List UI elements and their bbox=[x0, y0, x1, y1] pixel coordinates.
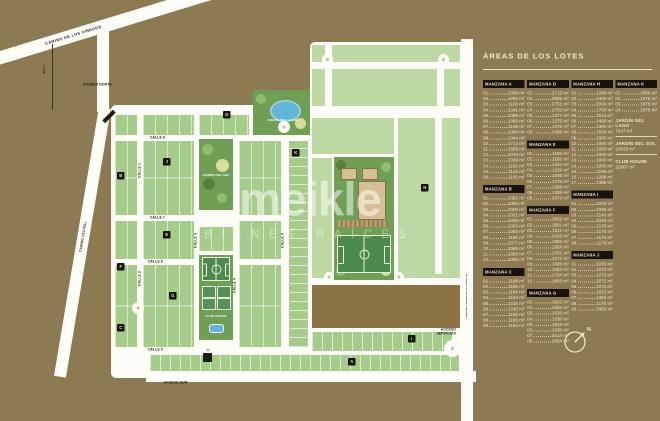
dotted-leader bbox=[578, 276, 595, 277]
dotted-leader bbox=[578, 122, 595, 123]
grid-area-mid bbox=[312, 118, 394, 154]
dotted-leader bbox=[578, 110, 595, 111]
tree bbox=[203, 178, 215, 190]
dotted-leader bbox=[578, 178, 595, 179]
dotted-leader bbox=[534, 248, 551, 249]
tree bbox=[256, 94, 266, 104]
dotted-leader bbox=[534, 270, 551, 271]
dotted-leader bbox=[578, 166, 595, 167]
manzana-header: MANZANA A bbox=[483, 80, 525, 88]
lot-block bbox=[143, 265, 194, 347]
lot-area-value: 2564 m² bbox=[552, 339, 569, 345]
dotted-leader bbox=[490, 99, 507, 100]
special-area-title: JARDÍN DEL SOL bbox=[615, 141, 657, 146]
club-building bbox=[341, 168, 357, 180]
grid-area-west-strip bbox=[312, 158, 332, 278]
street-label: CALLE 2 bbox=[138, 271, 142, 286]
manzana-chip-e: E bbox=[163, 231, 171, 239]
manzana-chip-h: H bbox=[421, 184, 429, 192]
legend-column: MANZANA K011800 m²021875 m²031875 m²0418… bbox=[615, 80, 657, 349]
special-area-value: 22067 m² bbox=[615, 164, 657, 169]
dotted-leader bbox=[534, 314, 551, 315]
lot-area-value: 2073 m² bbox=[552, 196, 569, 202]
road-vecinal-left-label: CAMINO VECINAL bbox=[79, 221, 88, 252]
dotted-leader bbox=[578, 221, 595, 222]
dotted-leader bbox=[534, 176, 551, 177]
dotted-leader bbox=[534, 336, 551, 337]
dotted-leader bbox=[490, 94, 507, 95]
tennis-court bbox=[202, 286, 216, 298]
dotted-leader bbox=[534, 253, 551, 254]
manzana-header: MANZANA H bbox=[571, 80, 613, 88]
dotted-leader bbox=[490, 127, 508, 128]
manzana-header: MANZANA F bbox=[527, 206, 569, 214]
club-soccer-field bbox=[337, 235, 391, 273]
club-building bbox=[362, 168, 378, 180]
manzana-chip-k: K bbox=[292, 149, 300, 157]
manzana-header: MANZANA B bbox=[483, 185, 525, 193]
roundabout bbox=[324, 272, 334, 282]
dotted-leader bbox=[578, 204, 595, 205]
lot-area-value: 1131 m² bbox=[508, 175, 525, 181]
access-norte-label: ACCESO NORTE bbox=[80, 83, 115, 87]
tree bbox=[216, 159, 229, 172]
dotted-leader bbox=[534, 133, 551, 134]
dotted-leader bbox=[578, 227, 596, 228]
dotted-leader bbox=[578, 298, 595, 299]
street-label: CALLE 9 bbox=[148, 347, 163, 353]
lot-block bbox=[199, 227, 233, 251]
roundabout bbox=[438, 54, 449, 65]
special-area-title: CLUB HOUSE bbox=[615, 159, 657, 164]
dotted-leader bbox=[578, 210, 595, 211]
legend-divider bbox=[615, 154, 657, 155]
dotted-leader bbox=[490, 166, 508, 167]
dotted-leader bbox=[534, 308, 551, 309]
dotted-leader bbox=[490, 133, 507, 134]
manzana-header: MANZANA C bbox=[483, 268, 525, 276]
dotted-leader bbox=[490, 215, 507, 216]
dotted-leader bbox=[490, 281, 508, 282]
road-left-boundary: CAMINO VECINAL bbox=[54, 107, 111, 378]
manzana-header: MANZANA G bbox=[527, 289, 569, 297]
dotted-leader bbox=[578, 287, 595, 288]
lot-area-value: 1176 m² bbox=[596, 240, 613, 246]
entrance-gate-south bbox=[203, 353, 212, 362]
legend-column: MANZANA D012712 m²022695 m²032751 m²0427… bbox=[527, 80, 569, 349]
lot-area-value: 3402 m² bbox=[596, 306, 613, 312]
dotted-leader bbox=[622, 110, 639, 111]
park-sol-label: JARDÍN DEL SOL bbox=[202, 174, 230, 178]
dotted-leader bbox=[578, 293, 595, 294]
dotted-leader bbox=[534, 127, 551, 128]
goal-box bbox=[337, 246, 344, 264]
dotted-leader bbox=[578, 116, 595, 117]
reserve-area bbox=[312, 285, 460, 328]
lot-area-value: 1065 m² bbox=[508, 257, 525, 263]
dotted-leader bbox=[578, 127, 595, 128]
dotted-leader bbox=[490, 249, 507, 250]
dotted-leader bbox=[534, 220, 551, 221]
grid-road-v2 bbox=[437, 69, 444, 112]
club-main-building bbox=[358, 181, 386, 220]
lot-area-value: 1405 m² bbox=[552, 130, 569, 136]
lot-block bbox=[115, 221, 137, 259]
dotted-leader bbox=[578, 161, 595, 162]
lot-area-value: 1164 m² bbox=[508, 323, 525, 329]
dotted-leader bbox=[490, 293, 508, 294]
tree bbox=[202, 144, 213, 155]
grid-road-h1 bbox=[312, 62, 460, 69]
site-plan-canvas: CAMINO DE LOS VIÑEDOS CAMINO VECINAL CAM… bbox=[0, 0, 660, 421]
dotted-leader bbox=[534, 259, 551, 260]
access-sur-label: ACCESO SUR bbox=[158, 381, 193, 385]
lot-block bbox=[143, 115, 194, 135]
dotted-leader bbox=[622, 94, 639, 95]
dotted-leader bbox=[490, 161, 507, 162]
dotted-leader bbox=[490, 105, 508, 106]
lot-area-value: 1399 m² bbox=[596, 180, 613, 186]
dotted-leader bbox=[490, 227, 507, 228]
lot-block bbox=[115, 115, 137, 135]
distance-marker-label: 800 m bbox=[43, 65, 46, 74]
dotted-leader bbox=[490, 221, 507, 222]
dotted-leader bbox=[490, 150, 507, 151]
dotted-leader bbox=[578, 150, 595, 151]
dotted-leader bbox=[534, 265, 551, 266]
manzana-header: MANZANA I bbox=[571, 191, 613, 199]
lot-block bbox=[239, 221, 281, 259]
lot-block bbox=[289, 141, 308, 347]
legend-column: MANZANA A011039 m²021056 m²031100 m²0410… bbox=[483, 80, 525, 349]
dotted-leader bbox=[578, 238, 596, 239]
dotted-leader bbox=[490, 138, 507, 139]
dotted-leader bbox=[578, 215, 596, 216]
dotted-leader bbox=[578, 304, 596, 305]
club-house-label: CLUB HOUSE bbox=[199, 315, 233, 319]
manzana-chip-d: D bbox=[223, 111, 231, 119]
dotted-leader bbox=[490, 172, 508, 173]
tree bbox=[217, 193, 227, 203]
dotted-leader bbox=[578, 183, 595, 184]
goal-box bbox=[384, 246, 391, 264]
dotted-leader bbox=[622, 105, 639, 106]
legend-title-underline bbox=[483, 69, 652, 70]
club-terrace bbox=[338, 220, 387, 227]
dotted-leader bbox=[534, 105, 551, 106]
dotted-leader bbox=[534, 193, 551, 194]
manzana-header: MANZANA D bbox=[527, 80, 569, 88]
dotted-leader bbox=[490, 304, 507, 305]
dotted-leader bbox=[534, 237, 551, 238]
lot-block bbox=[143, 141, 194, 215]
dotted-leader bbox=[534, 122, 551, 123]
manzana-chip-j: J bbox=[163, 158, 171, 166]
manzana-header: MANZANA E bbox=[527, 140, 569, 148]
dotted-leader bbox=[534, 110, 551, 111]
tree bbox=[381, 162, 391, 172]
legend-columns: MANZANA A011039 m²021056 m²031100 m²0410… bbox=[483, 80, 657, 349]
access-servicios-label: ACCESO SERVICIOS bbox=[426, 328, 456, 336]
dotted-leader bbox=[490, 243, 507, 244]
dotted-leader bbox=[578, 281, 595, 282]
dotted-leader bbox=[534, 319, 551, 320]
manzana-chip-c: C bbox=[117, 324, 125, 332]
soccer-field bbox=[202, 257, 230, 281]
dotted-leader bbox=[534, 302, 551, 303]
dotted-leader bbox=[578, 172, 596, 173]
dotted-leader bbox=[578, 138, 595, 139]
dotted-leader bbox=[578, 99, 595, 100]
dotted-leader bbox=[578, 105, 595, 106]
manzana-header: MANZANA K bbox=[615, 80, 657, 88]
grid-road-v3 bbox=[435, 118, 442, 274]
dotted-leader bbox=[490, 122, 507, 123]
street-label: CALLE 7 bbox=[150, 215, 165, 221]
roundabout bbox=[444, 340, 461, 357]
manzana-chip-a: A bbox=[348, 358, 356, 366]
dotted-leader bbox=[578, 243, 596, 244]
manzana-chip-i: I bbox=[408, 335, 416, 343]
grid-area-east bbox=[398, 118, 460, 278]
dotted-leader bbox=[534, 94, 551, 95]
dotted-leader bbox=[578, 144, 595, 145]
dotted-leader bbox=[578, 232, 596, 233]
legend-divider bbox=[615, 136, 657, 137]
goal-box bbox=[202, 264, 207, 277]
roundabout bbox=[394, 272, 404, 282]
dotted-leader bbox=[490, 204, 507, 205]
special-area-title: JARDÍN DEL LAGO bbox=[615, 118, 657, 128]
roundabout bbox=[132, 302, 144, 314]
manzana-chip-f: F bbox=[117, 263, 125, 271]
pool bbox=[209, 324, 224, 333]
goal-box bbox=[225, 264, 230, 277]
dotted-leader bbox=[534, 199, 551, 200]
dotted-leader bbox=[490, 238, 508, 239]
dotted-leader bbox=[490, 110, 507, 111]
dotted-leader bbox=[490, 199, 507, 200]
lot-area-value: 1803 m² bbox=[552, 278, 569, 284]
dotted-leader bbox=[534, 225, 551, 226]
manzana-chip-g: G bbox=[169, 292, 177, 300]
dotted-leader bbox=[534, 325, 551, 326]
dotted-leader bbox=[534, 281, 551, 282]
lot-row-block-a bbox=[150, 355, 459, 371]
roundabout bbox=[278, 121, 290, 133]
dotted-leader bbox=[578, 270, 595, 271]
lot-area-value: 1875 m² bbox=[640, 107, 657, 113]
dotted-leader bbox=[490, 255, 507, 256]
tennis-court bbox=[202, 298, 216, 310]
dotted-leader bbox=[490, 260, 507, 261]
dotted-leader bbox=[534, 187, 551, 188]
dotted-leader bbox=[534, 330, 551, 331]
dotted-leader bbox=[578, 265, 595, 266]
dotted-leader bbox=[534, 159, 551, 160]
dotted-leader bbox=[622, 99, 639, 100]
dotted-leader bbox=[490, 298, 508, 299]
road-camino-vinedos: CAMINO DE LOS VIÑEDOS bbox=[0, 0, 272, 68]
dotted-leader bbox=[490, 315, 508, 316]
lot-block bbox=[239, 265, 281, 347]
manzana-header: MANZANA J bbox=[571, 251, 613, 259]
distance-marker-line bbox=[52, 44, 53, 110]
dotted-leader bbox=[534, 171, 551, 172]
street-label: CALLE 6 bbox=[150, 135, 165, 141]
dotted-leader bbox=[534, 231, 552, 232]
dotted-leader bbox=[490, 326, 508, 327]
special-area-value: 10039 m² bbox=[615, 146, 657, 151]
roundabout bbox=[322, 54, 333, 65]
dotted-leader bbox=[490, 287, 508, 288]
dotted-leader bbox=[490, 309, 507, 310]
lot-block bbox=[239, 141, 281, 215]
dotted-leader bbox=[534, 154, 552, 155]
street-label: CALLE 1 bbox=[138, 163, 142, 178]
dotted-leader bbox=[490, 155, 507, 156]
dotted-leader bbox=[490, 116, 507, 117]
street-label: CALLE 3 bbox=[194, 233, 198, 248]
road-acceso-norte bbox=[97, 29, 109, 112]
dotted-leader bbox=[578, 133, 595, 134]
dotted-leader bbox=[534, 165, 551, 166]
lot-block bbox=[143, 221, 194, 259]
tennis-court bbox=[217, 298, 231, 310]
dotted-leader bbox=[490, 144, 507, 145]
legend-title: ÁREAS DE LOS LOTES bbox=[483, 52, 584, 61]
legend-column: MANZANA H011299 m²022409 m²032000 m²0417… bbox=[571, 80, 613, 349]
dotted-leader bbox=[534, 342, 551, 343]
dotted-leader bbox=[490, 232, 507, 233]
street-label: CALLE 5 bbox=[281, 233, 285, 248]
dotted-leader bbox=[578, 155, 595, 156]
dotted-leader bbox=[534, 116, 551, 117]
dotted-leader bbox=[578, 309, 595, 310]
dotted-leader bbox=[534, 182, 551, 183]
street-label: CALLE 4 bbox=[233, 278, 237, 293]
special-area-value: 7547 m² bbox=[615, 128, 657, 133]
dotted-leader bbox=[534, 99, 551, 100]
dotted-leader bbox=[534, 276, 551, 277]
dotted-leader bbox=[490, 210, 507, 211]
dotted-leader bbox=[490, 178, 508, 179]
tennis-court bbox=[217, 286, 231, 298]
street-label: CALLE 8 bbox=[148, 259, 163, 265]
manzana-chip-b: B bbox=[117, 172, 125, 180]
dotted-leader bbox=[534, 242, 551, 243]
dotted-leader bbox=[490, 321, 508, 322]
dotted-leader bbox=[578, 94, 595, 95]
